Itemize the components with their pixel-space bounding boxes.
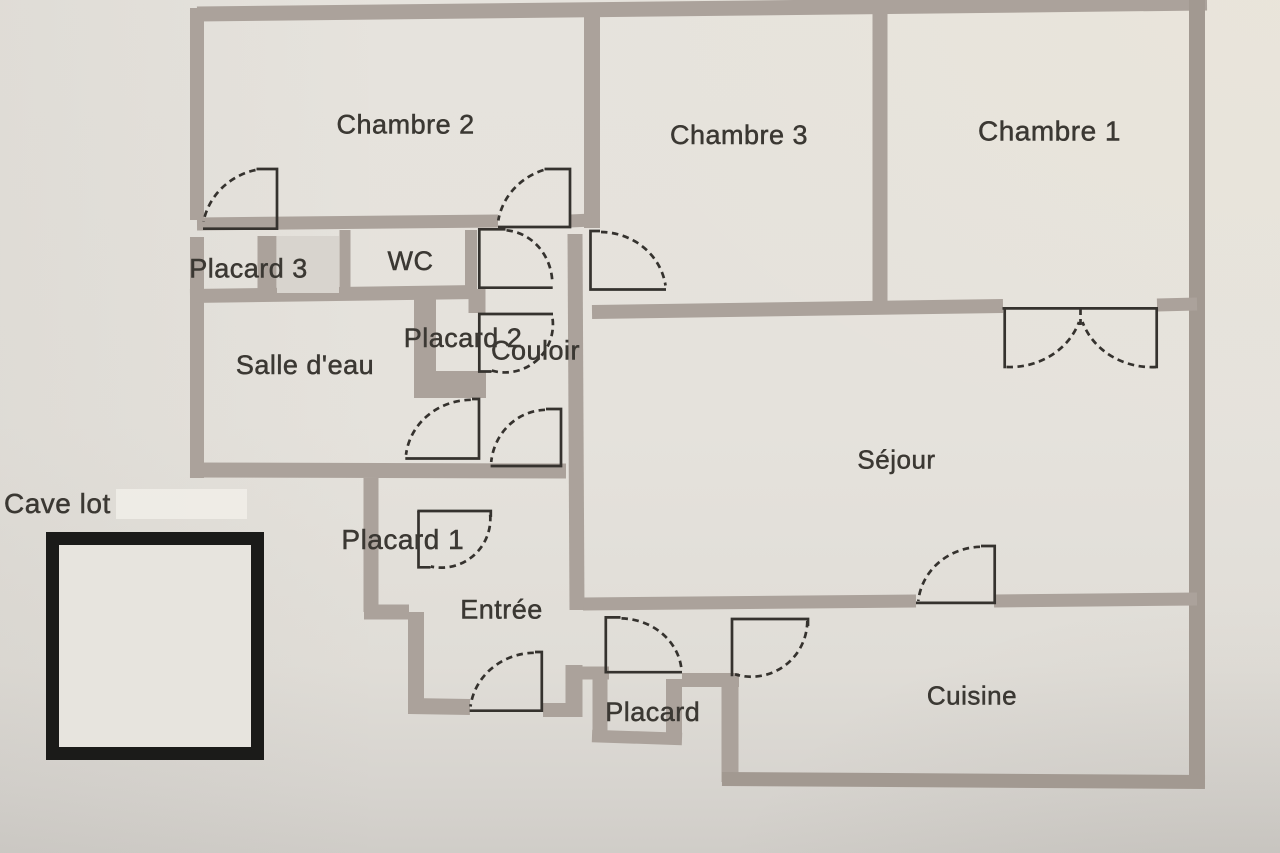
svg-text:Cuisine: Cuisine: [927, 681, 1017, 711]
svg-text:WC: WC: [388, 246, 434, 276]
svg-text:Chambre 3: Chambre 3: [670, 120, 808, 150]
svg-text:Placard: Placard: [605, 697, 700, 727]
svg-text:Cave lot: Cave lot: [4, 488, 111, 519]
svg-text:Chambre 1: Chambre 1: [978, 116, 1121, 147]
svg-text:Placard 1: Placard 1: [341, 524, 464, 555]
svg-text:Placard 3: Placard 3: [189, 254, 308, 284]
svg-text:Séjour: Séjour: [857, 444, 935, 474]
svg-text:Salle d'eau: Salle d'eau: [236, 350, 374, 380]
svg-text:Chambre 2: Chambre 2: [337, 109, 475, 139]
svg-text:Entrée: Entrée: [460, 595, 543, 625]
svg-text:Couloir: Couloir: [491, 336, 580, 366]
